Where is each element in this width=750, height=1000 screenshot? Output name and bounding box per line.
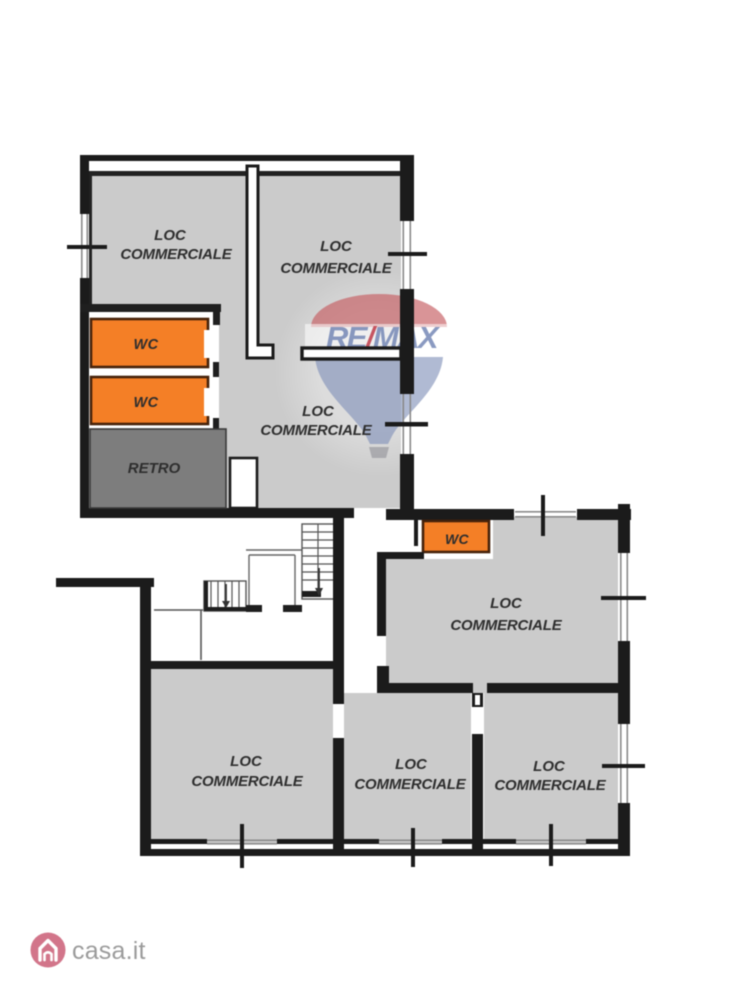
- svg-text:COMMERCIALE: COMMERCIALE: [260, 422, 372, 439]
- svg-text:COMMERCIALE: COMMERCIALE: [450, 617, 562, 634]
- svg-text:LOC: LOC: [533, 758, 566, 775]
- svg-text:WC: WC: [134, 395, 159, 411]
- svg-text:COMMERCIALE: COMMERCIALE: [280, 260, 392, 277]
- svg-text:LOC: LOC: [302, 403, 335, 420]
- svg-text:COMMERCIALE: COMMERCIALE: [191, 773, 303, 790]
- svg-text:casa.it: casa.it: [72, 937, 146, 965]
- svg-text:COMMERCIALE: COMMERCIALE: [120, 246, 232, 263]
- svg-text:RETRO: RETRO: [128, 460, 181, 477]
- svg-text:LOC: LOC: [154, 227, 187, 244]
- svg-text:LOC: LOC: [395, 756, 428, 773]
- svg-text:WC: WC: [445, 531, 470, 547]
- svg-text:WC: WC: [134, 337, 159, 353]
- svg-text:COMMERCIALE: COMMERCIALE: [494, 777, 606, 794]
- svg-text:LOC: LOC: [320, 238, 353, 255]
- svg-text:LOC: LOC: [230, 753, 263, 770]
- svg-text:COMMERCIALE: COMMERCIALE: [354, 776, 466, 793]
- svg-text:LOC: LOC: [490, 595, 523, 612]
